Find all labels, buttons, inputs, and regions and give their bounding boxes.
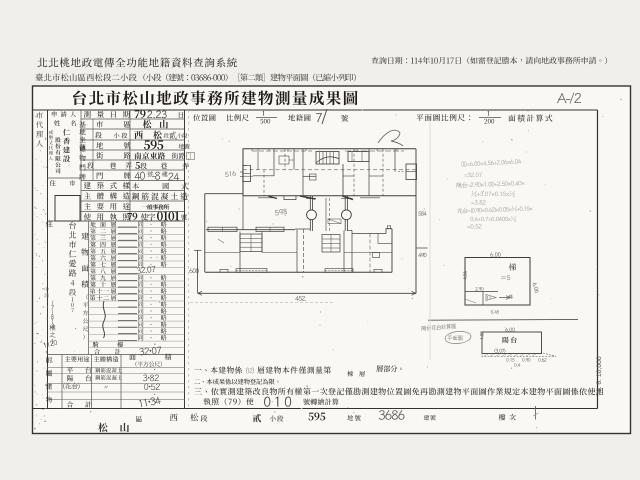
svg-text:78. 6. 10,000: 78. 6. 10,000 — [596, 356, 603, 396]
